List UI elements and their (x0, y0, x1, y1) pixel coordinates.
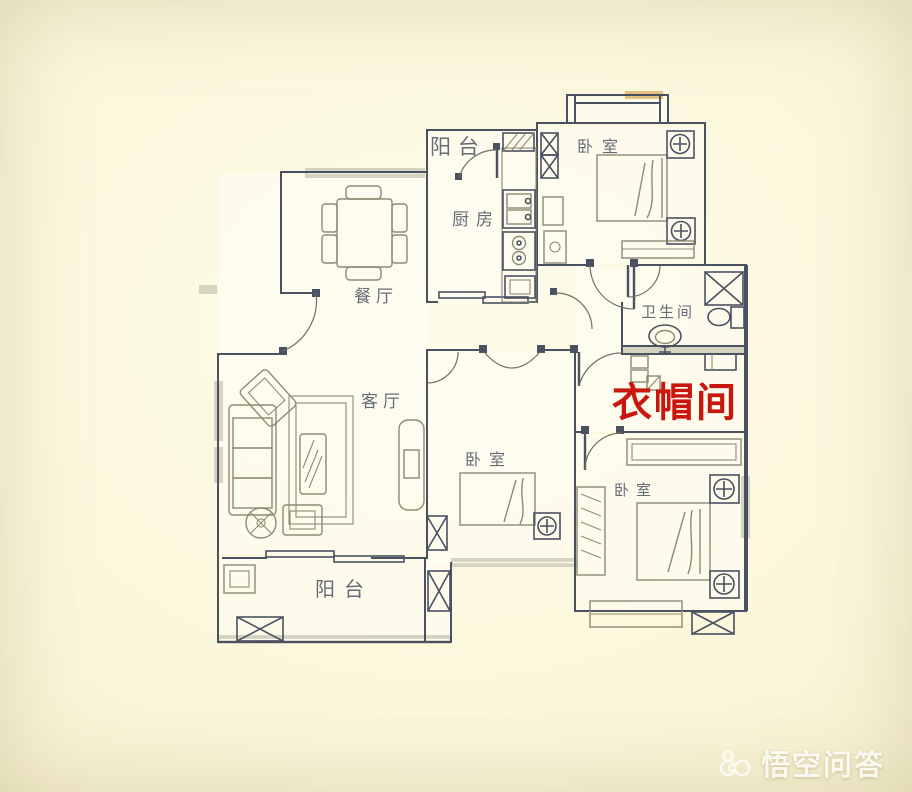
room-label-bedroom-top-right: 卧室 (577, 140, 627, 156)
watermark-text: 悟空问答 (761, 742, 885, 784)
room-label-dining-room: 餐厅 (354, 288, 398, 305)
room-label-bedroom-middle: 卧室 (465, 453, 513, 469)
room-label-living-room: 客厅 (361, 393, 405, 410)
wukong-cloud-logo-icon (716, 748, 754, 778)
floor-plan-drawing (0, 0, 912, 792)
room-label-kitchen: 厨房 (452, 211, 500, 228)
floor-plan-page: 阳台 卧室 厨房 餐厅 卫生间 客厅 卧室 卧室 阳台 衣帽间 悟空问答 (0, 0, 912, 792)
room-label-balcony-top: 阳台 (430, 137, 486, 158)
cloakroom-highlight-label: 衣帽间 (612, 383, 738, 423)
room-label-bathroom: 卫生间 (641, 305, 695, 320)
watermark: 悟空问答 (716, 742, 885, 784)
room-label-balcony-bottom: 阳台 (315, 580, 373, 600)
room-label-bedroom-bottom-right: 卧室 (614, 483, 658, 498)
